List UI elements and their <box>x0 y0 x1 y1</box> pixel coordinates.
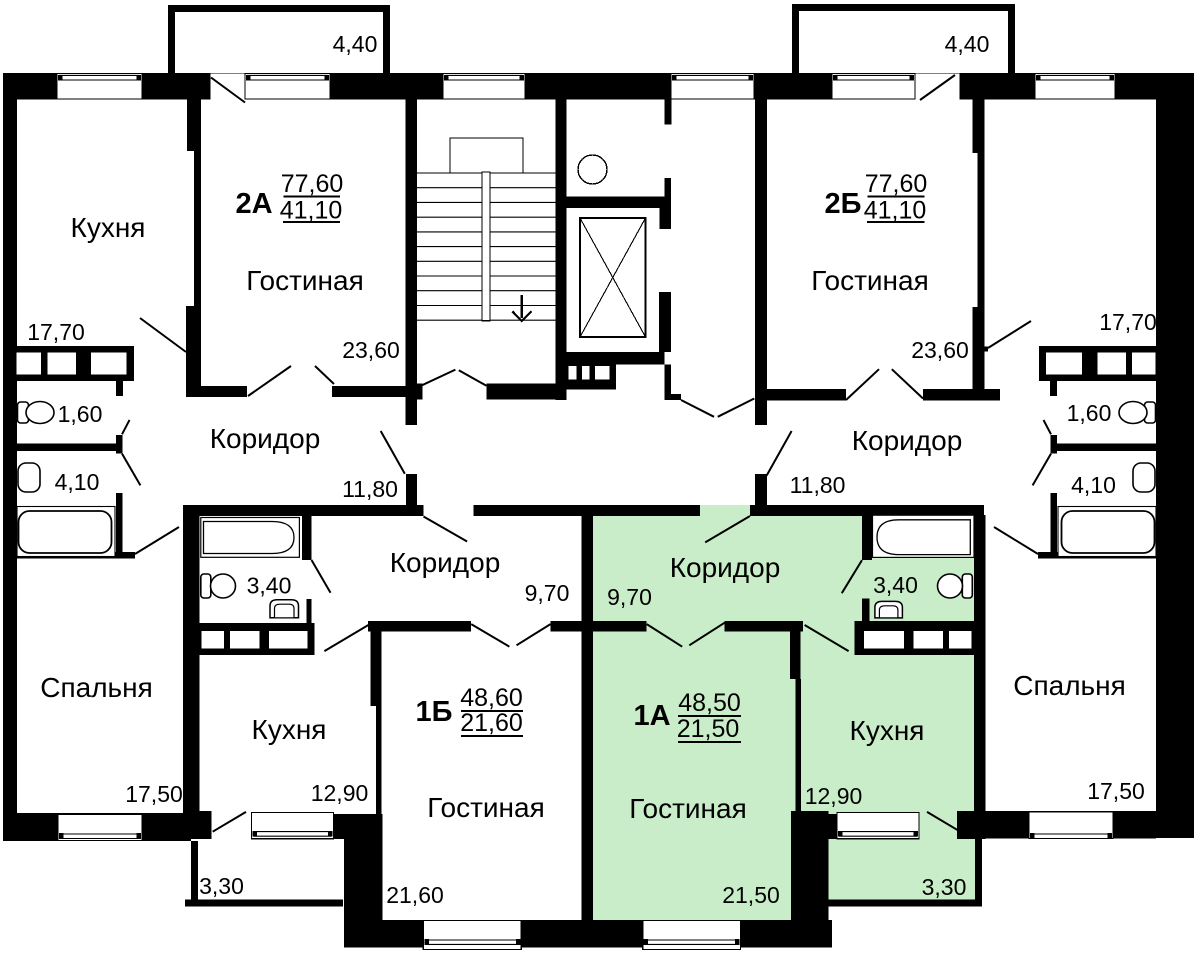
svg-text:2Б: 2Б <box>825 188 862 220</box>
svg-text:12,90: 12,90 <box>805 783 863 809</box>
svg-text:3,30: 3,30 <box>922 874 967 900</box>
svg-text:21,60: 21,60 <box>386 882 444 908</box>
svg-text:17,70: 17,70 <box>27 319 85 345</box>
svg-text:21,50: 21,50 <box>722 882 780 908</box>
svg-text:48,50: 48,50 <box>678 689 741 717</box>
svg-text:Кухня: Кухня <box>850 715 925 746</box>
svg-text:4,10: 4,10 <box>1071 472 1116 498</box>
svg-text:1А: 1А <box>633 700 670 732</box>
svg-text:23,60: 23,60 <box>911 337 969 363</box>
svg-text:17,70: 17,70 <box>1099 309 1157 335</box>
svg-text:Кухня: Кухня <box>71 212 146 243</box>
svg-text:48,60: 48,60 <box>460 684 523 712</box>
svg-text:3,40: 3,40 <box>247 573 292 599</box>
svg-text:11,80: 11,80 <box>342 476 398 502</box>
svg-text:9,70: 9,70 <box>525 580 570 606</box>
svg-text:77,60: 77,60 <box>281 170 344 198</box>
svg-text:Гостиная: Гостиная <box>427 792 545 823</box>
svg-text:23,60: 23,60 <box>342 337 400 363</box>
svg-text:Коридор: Коридор <box>210 423 321 454</box>
svg-text:Гостиная: Гостиная <box>629 793 747 824</box>
svg-text:Коридор: Коридор <box>390 547 501 578</box>
svg-text:1,60: 1,60 <box>58 401 103 427</box>
svg-text:12,90: 12,90 <box>311 780 369 806</box>
svg-text:11,80: 11,80 <box>790 472 846 498</box>
svg-text:17,50: 17,50 <box>125 781 183 807</box>
svg-text:Спальня: Спальня <box>1013 670 1126 701</box>
svg-text:2А: 2А <box>235 188 272 220</box>
svg-text:41,10: 41,10 <box>864 197 927 225</box>
svg-text:9,70: 9,70 <box>607 584 652 610</box>
svg-text:77,60: 77,60 <box>865 170 928 198</box>
svg-text:Спальня: Спальня <box>40 672 153 703</box>
svg-text:1Б: 1Б <box>416 696 453 728</box>
svg-text:4,10: 4,10 <box>55 469 100 495</box>
svg-text:Гостиная: Гостиная <box>246 265 364 296</box>
svg-text:1,60: 1,60 <box>1067 400 1112 426</box>
svg-text:41,10: 41,10 <box>280 197 343 225</box>
svg-text:4,40: 4,40 <box>333 31 378 57</box>
svg-text:21,50: 21,50 <box>677 715 740 743</box>
svg-text:Гостиная: Гостиная <box>811 265 929 296</box>
svg-text:Коридор: Коридор <box>852 425 963 456</box>
svg-text:Кухня: Кухня <box>252 714 327 745</box>
svg-text:3,30: 3,30 <box>199 873 244 899</box>
svg-text:3,40: 3,40 <box>873 572 918 598</box>
svg-text:Коридор: Коридор <box>670 552 781 583</box>
svg-text:17,50: 17,50 <box>1087 778 1145 804</box>
svg-text:4,40: 4,40 <box>945 31 990 57</box>
svg-text:21,60: 21,60 <box>460 709 523 737</box>
